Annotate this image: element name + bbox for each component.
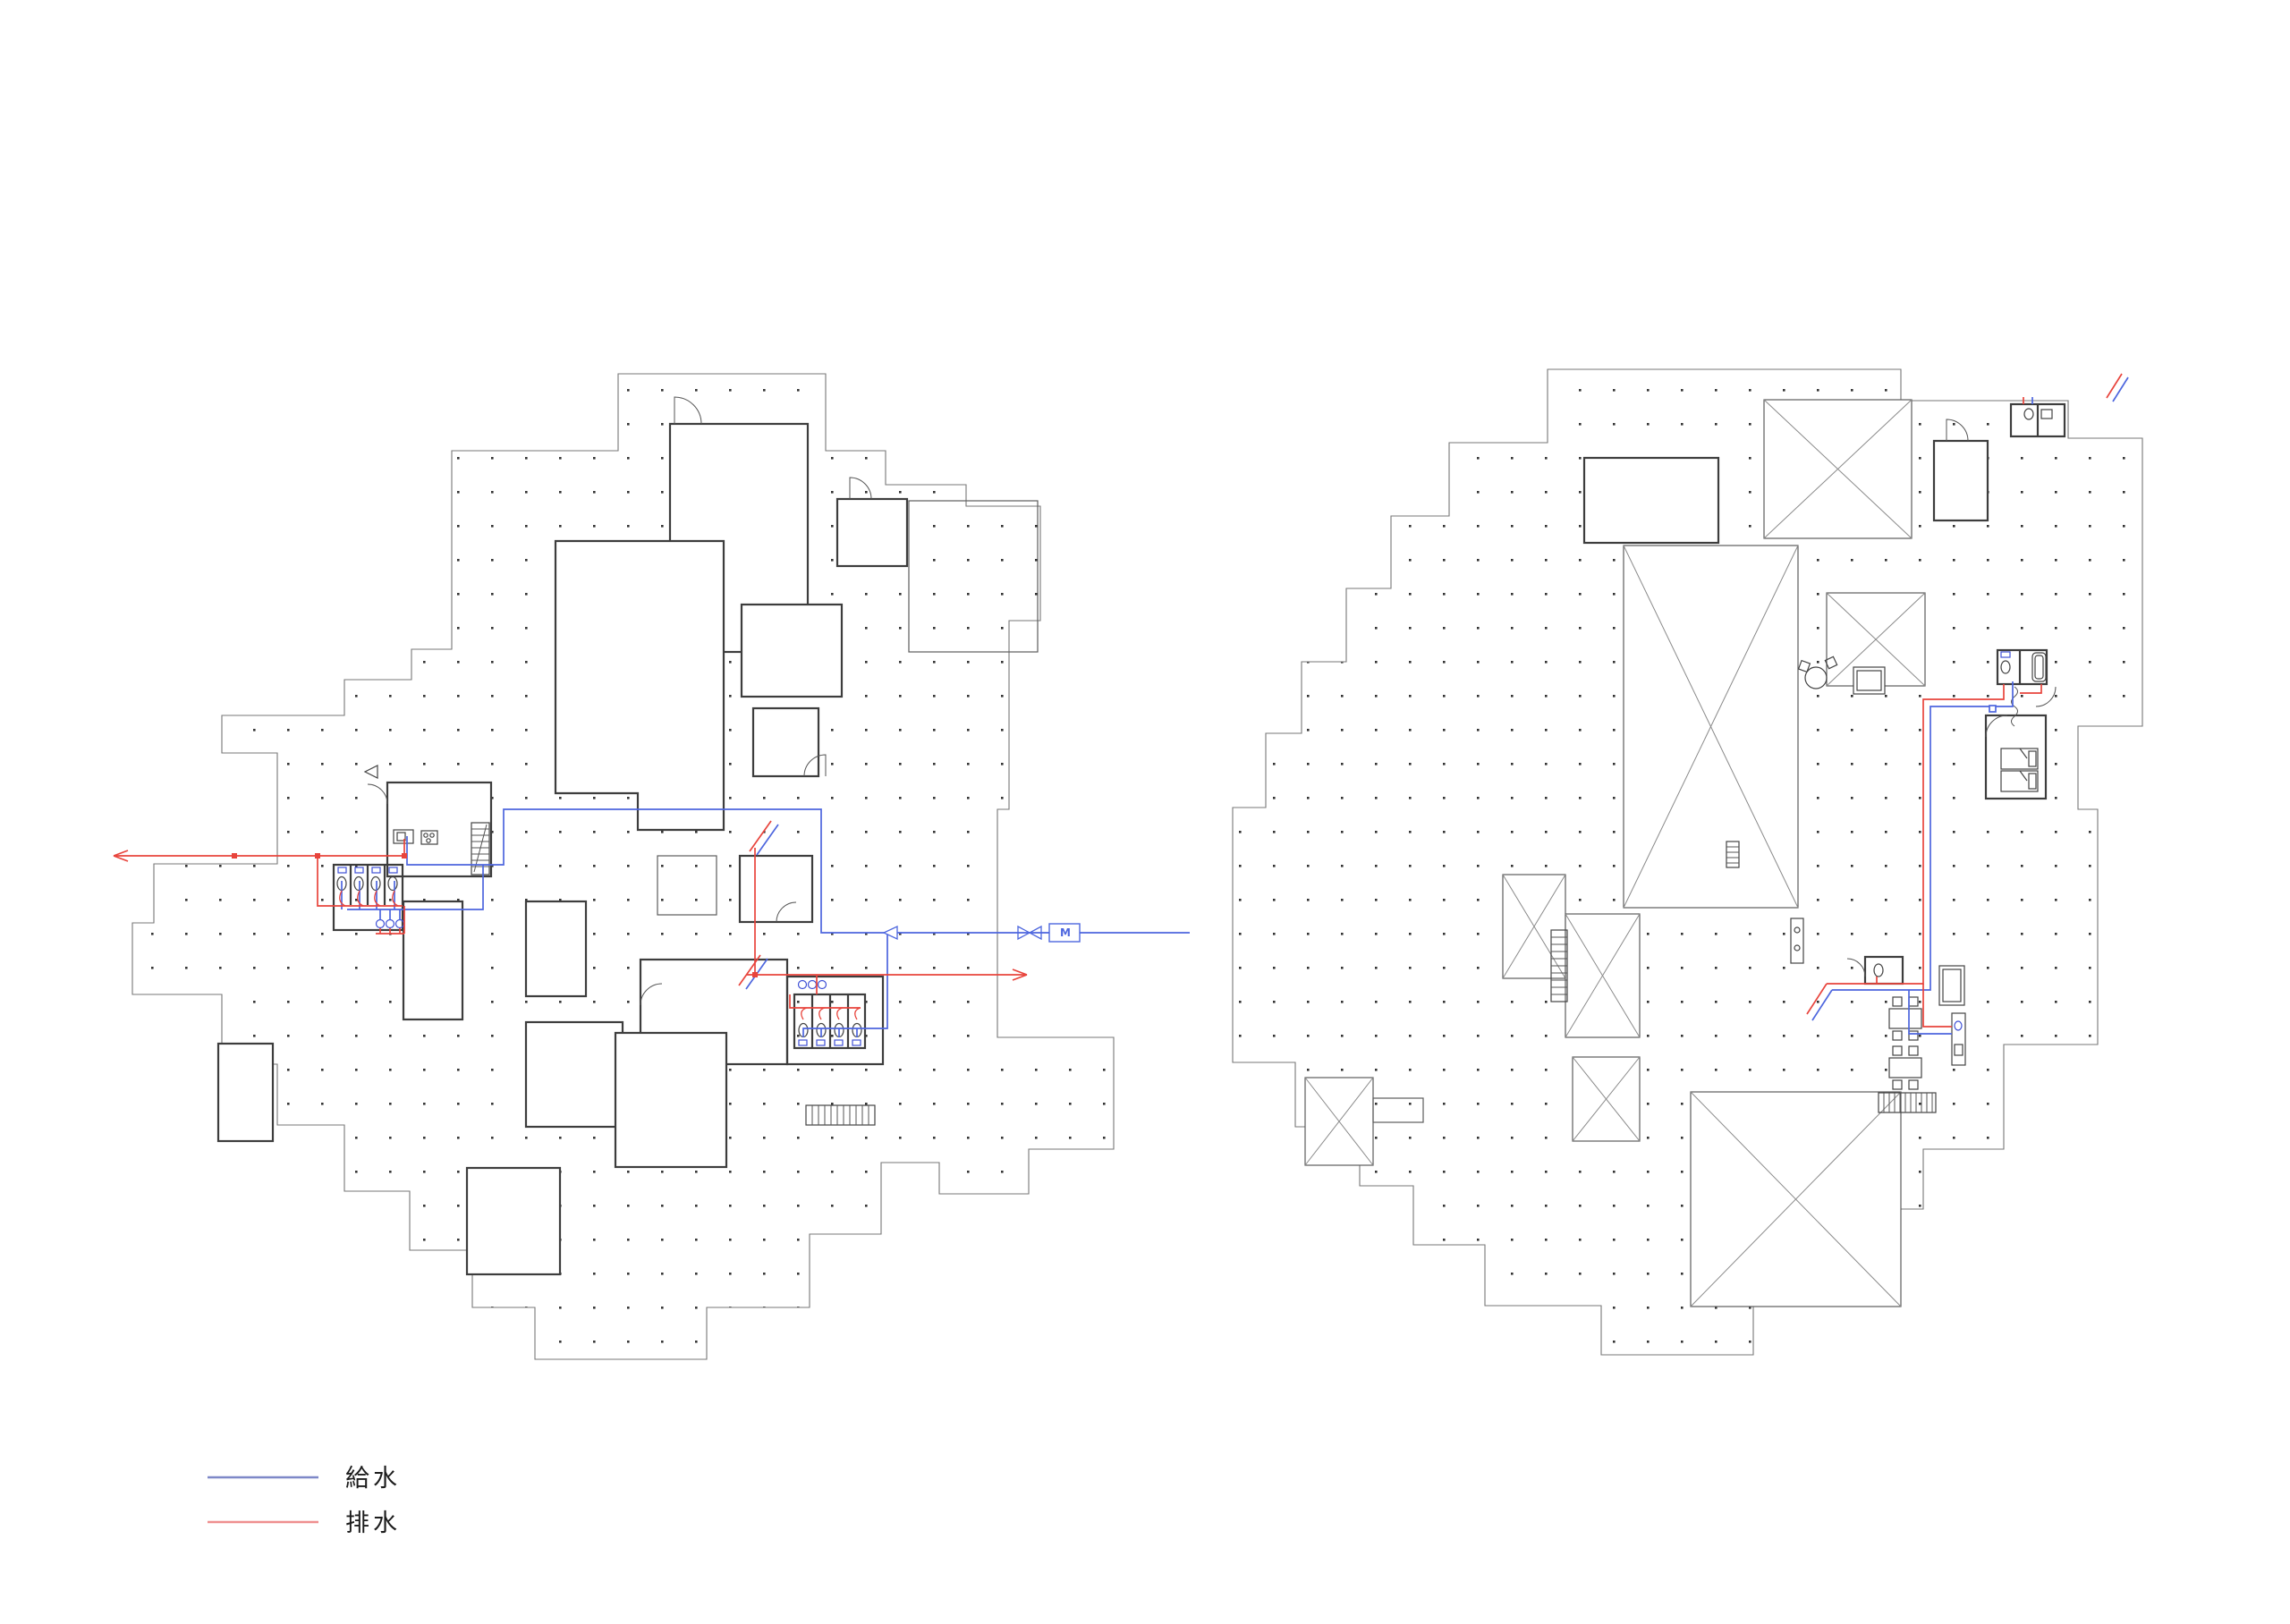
table-icon: [1889, 1058, 1921, 1078]
void-box: [1624, 546, 1798, 908]
building-outline: [132, 374, 1114, 1359]
void-box: [1565, 914, 1640, 1037]
water-meter: M: [1049, 924, 1080, 942]
wc-room-walls: [1865, 957, 1903, 984]
legend-item-supply: 給水: [208, 1465, 401, 1493]
legend-label-supply: 給水: [345, 1465, 401, 1493]
meter-label: M: [1060, 926, 1071, 939]
bathtub-icon: [2032, 653, 2046, 681]
plumbing-plan-sheet: { "legend": { "items": [ { "name": "supp…: [0, 0, 2290, 1624]
drawing-canvas: M: [0, 0, 2290, 1624]
void-box: [1764, 400, 1912, 538]
table-icon: [1889, 1009, 1921, 1028]
void-box: [1691, 1092, 1901, 1307]
legend-label-drain: 排水: [345, 1510, 401, 1537]
kitchen-sink-icon: [394, 830, 413, 843]
legend: 給水 排水: [208, 1465, 401, 1537]
counter-icon: [1791, 918, 1803, 963]
legend-item-drain: 排水: [208, 1510, 401, 1537]
void-box: [1503, 875, 1565, 978]
wc-tank-icon: [2001, 652, 2010, 657]
floor-plan-right: [1233, 369, 2142, 1355]
void-box: [1573, 1057, 1640, 1141]
floor-plan-left: [132, 374, 1114, 1359]
